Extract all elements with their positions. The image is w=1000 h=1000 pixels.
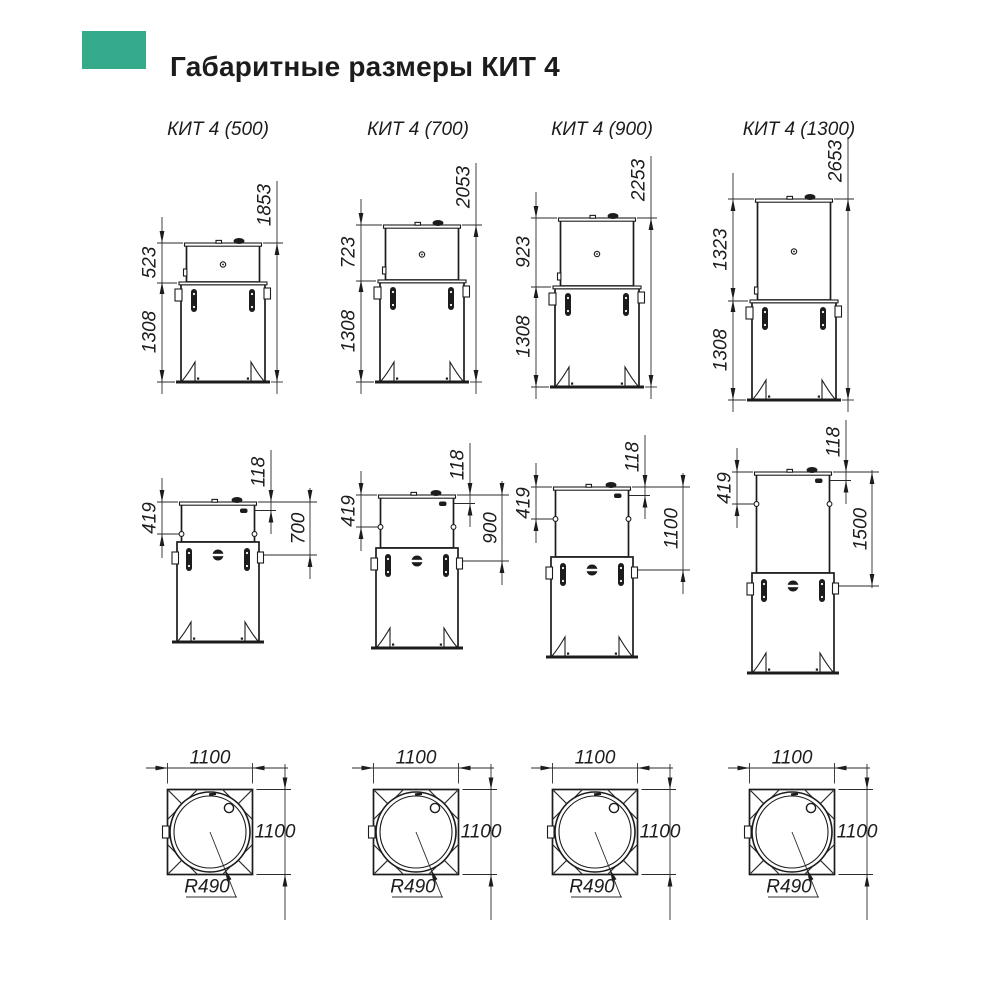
dim-label-total-height: 2253: [629, 158, 650, 202]
dim-label-plan-depth: 1100: [255, 822, 296, 843]
dim-label-plan-width: 1100: [190, 748, 231, 769]
top-view-kit4-500: 11001100R490: [110, 735, 310, 935]
dim-label-plan-width: 1100: [575, 748, 616, 769]
dim-label-body-height: 1308: [514, 315, 535, 358]
dim-label-neck-height: 419: [715, 472, 736, 504]
dim-label-inlet-offset: 118: [448, 449, 469, 480]
top-view-kit4-900: 11001100R490: [495, 735, 695, 935]
dim-label-plan-width: 1100: [396, 748, 437, 769]
dim-label-plan-depth: 1100: [837, 822, 878, 843]
dim-label-body-height: 1308: [339, 309, 360, 352]
dim-label-upper-height: 923: [514, 236, 535, 268]
dim-label-total-height: 2053: [454, 165, 475, 209]
dim-label-upper-height: 1323: [711, 228, 732, 271]
side-view-kit4-500: 419118700: [118, 432, 318, 688]
side-view-kit4-1300: 4191181500: [693, 432, 893, 688]
side-view-kit4-900: 4191181100: [492, 432, 692, 688]
side-view-kit4-700: 419118900: [317, 432, 517, 688]
page: Габаритные размеры КИТ 4 КИТ 4 (500) КИТ…: [0, 0, 1000, 1000]
page-title: Габаритные размеры КИТ 4: [170, 51, 560, 83]
front-view-kit4-900: 92313082253: [497, 120, 697, 430]
dim-label-upper-height: 723: [339, 236, 360, 268]
dim-label-total-height: 1853: [255, 183, 276, 226]
dim-label-inlet-offset: 118: [249, 456, 270, 487]
dim-label-inlet-offset: 118: [623, 441, 644, 472]
dim-label-radius: R490: [569, 877, 615, 898]
dim-label-neck-height: 419: [140, 502, 161, 534]
dim-label-inlet-depth: 1100: [662, 508, 683, 549]
dim-label-inlet-depth: 700: [289, 512, 310, 544]
dim-label-body-height: 1308: [140, 310, 161, 353]
dim-label-total-height: 2653: [826, 139, 847, 183]
dim-label-radius: R490: [390, 877, 436, 898]
dim-label-radius: R490: [184, 877, 230, 898]
dim-label-upper-height: 523: [140, 246, 161, 278]
dim-label-radius: R490: [766, 877, 812, 898]
front-view-kit4-500: 52313081853: [123, 120, 323, 430]
dim-label-plan-width: 1100: [772, 748, 813, 769]
accent-swatch: [82, 31, 146, 69]
dim-label-plan-depth: 1100: [640, 822, 681, 843]
dim-label-body-height: 1308: [711, 328, 732, 371]
dim-label-neck-height: 419: [514, 487, 535, 519]
top-view-kit4-1300: 11001100R490: [692, 735, 892, 935]
front-view-kit4-1300: 132313082653: [694, 120, 894, 430]
dim-label-inlet-depth: 1500: [851, 507, 872, 550]
front-view-kit4-700: 72313082053: [322, 120, 522, 430]
top-view-kit4-700: 11001100R490: [316, 735, 516, 935]
dim-label-neck-height: 419: [339, 495, 360, 527]
dim-label-inlet-offset: 118: [824, 426, 845, 457]
